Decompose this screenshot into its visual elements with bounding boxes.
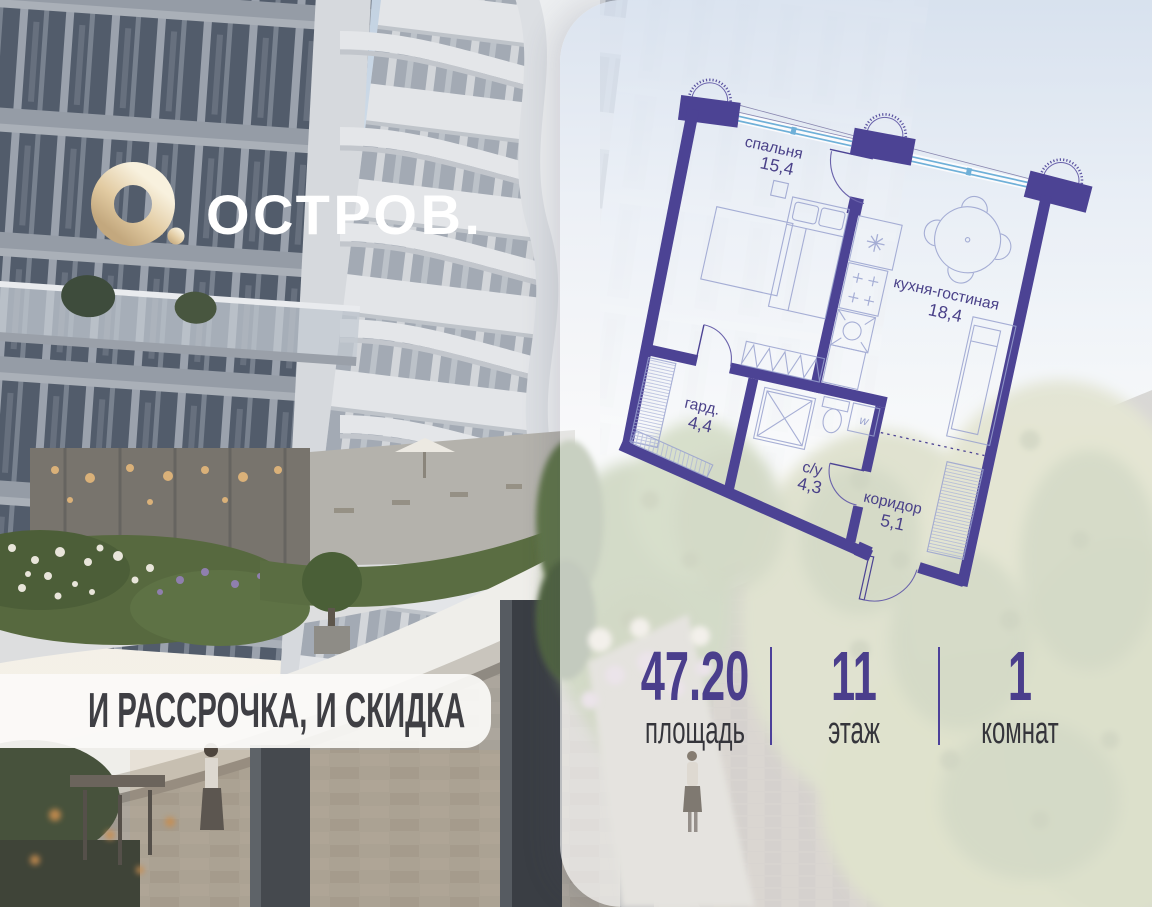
svg-text:4,4: 4,4: [686, 412, 714, 437]
svg-text:4,3: 4,3: [796, 473, 824, 498]
svg-text:5,1: 5,1: [879, 510, 907, 535]
svg-text:w: w: [858, 413, 871, 429]
